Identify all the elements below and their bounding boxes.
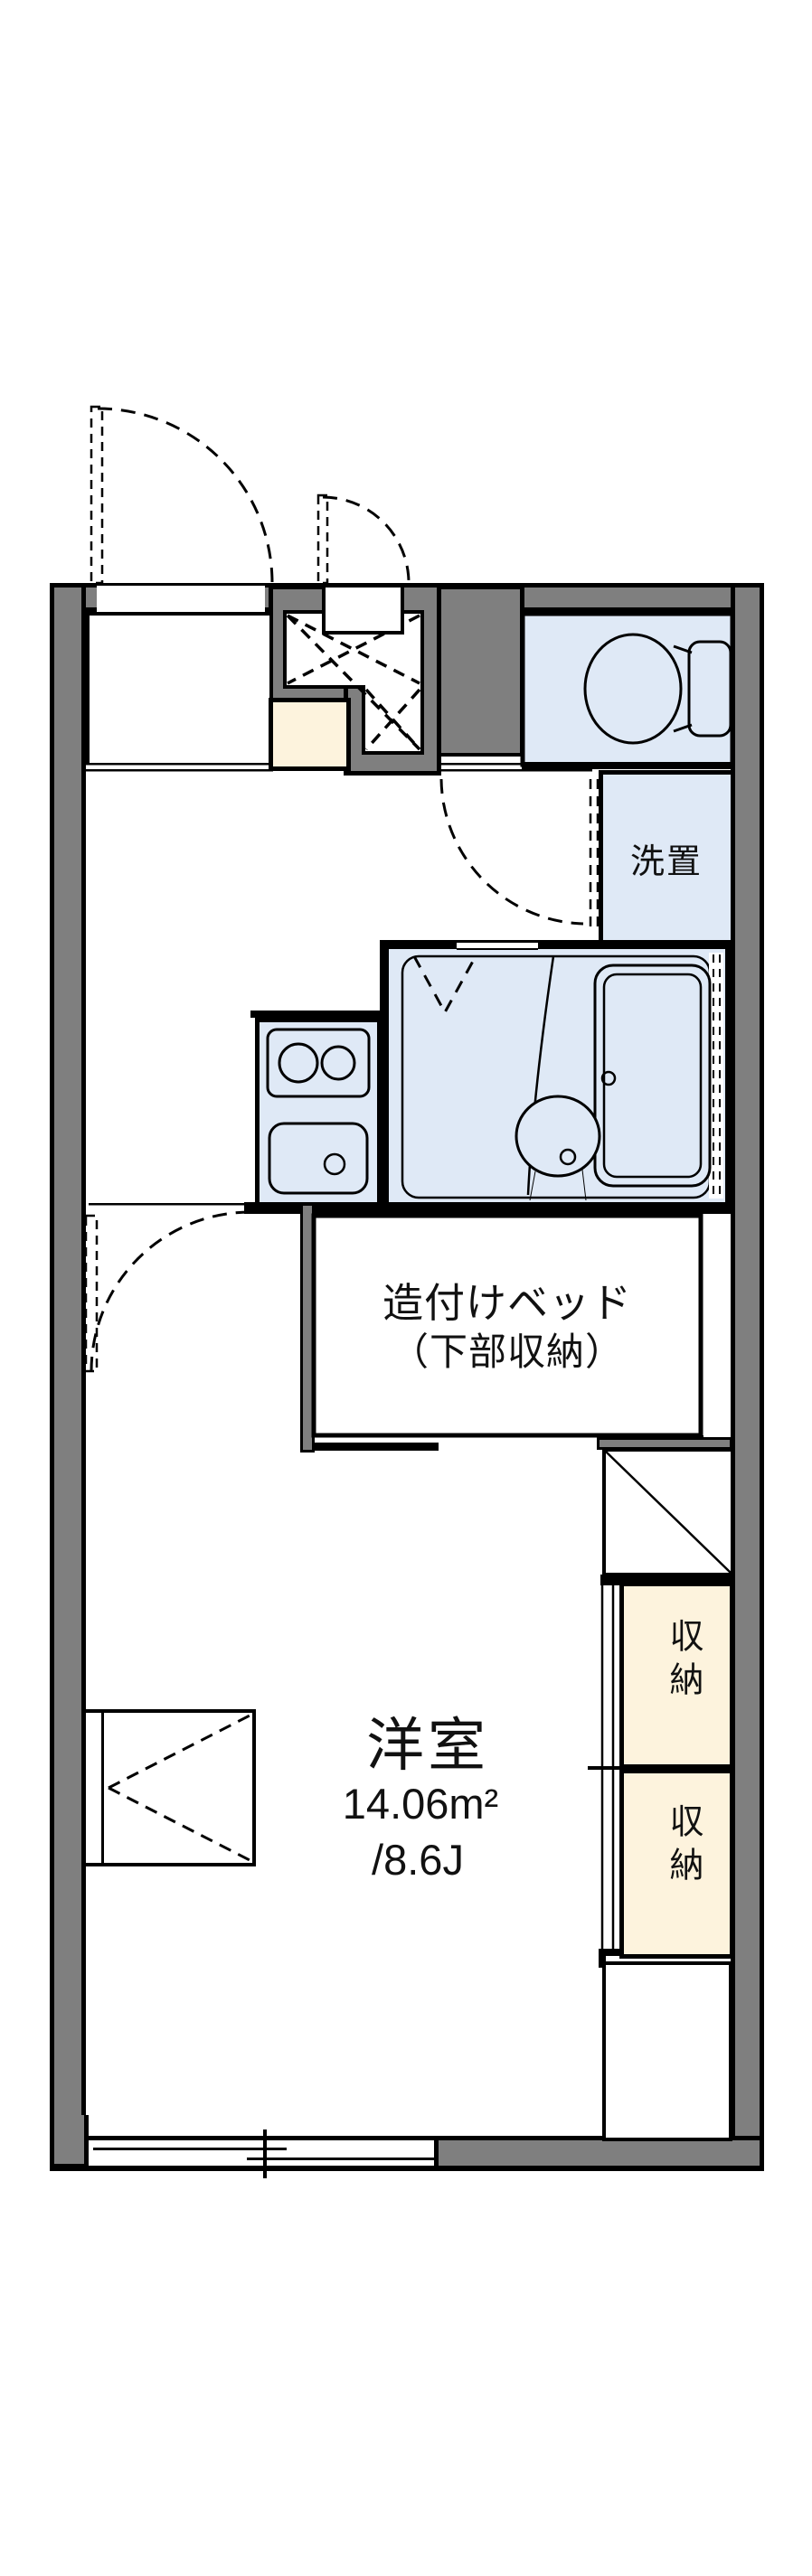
sliding-window <box>84 2129 439 2178</box>
floorplan-page: 洗置 造付けベッド （下部収納） 洋室 14.06m² /8.6J 収納 収納 <box>0 0 812 2576</box>
kitchen-counter <box>250 1011 384 1211</box>
porch-door-swing <box>91 407 272 583</box>
refrigerator-space <box>600 1450 732 1585</box>
closet-upper-label: 収納 <box>658 1618 708 1705</box>
washer-space-label: 洗置 <box>630 833 703 883</box>
entrance-hall <box>86 614 273 772</box>
room-area-sqm-label: 14.06m² <box>343 1779 498 1829</box>
entrance-door-swing <box>318 495 409 583</box>
closet-lower-label: 収納 <box>658 1803 708 1890</box>
built-in-bed-sublabel: （下部収納） <box>391 1321 624 1377</box>
corner-niche <box>604 1963 731 2139</box>
shoe-cabinet <box>269 698 351 771</box>
built-in-bed-label: 造付けベッド <box>382 1270 632 1329</box>
outer-wall-right <box>731 583 764 2171</box>
window-casement <box>84 1711 254 1865</box>
toilet-room <box>522 614 732 769</box>
bathroom <box>380 940 734 1211</box>
outer-wall-left <box>50 583 86 2171</box>
entrance-door <box>324 586 402 633</box>
toilet-icon <box>585 635 731 743</box>
room-area-jo-label: /8.6J <box>372 1835 464 1885</box>
room-name-label: 洋室 <box>366 1699 489 1782</box>
room-door-swing <box>86 1212 250 1371</box>
washroom-door-swing <box>441 779 598 926</box>
